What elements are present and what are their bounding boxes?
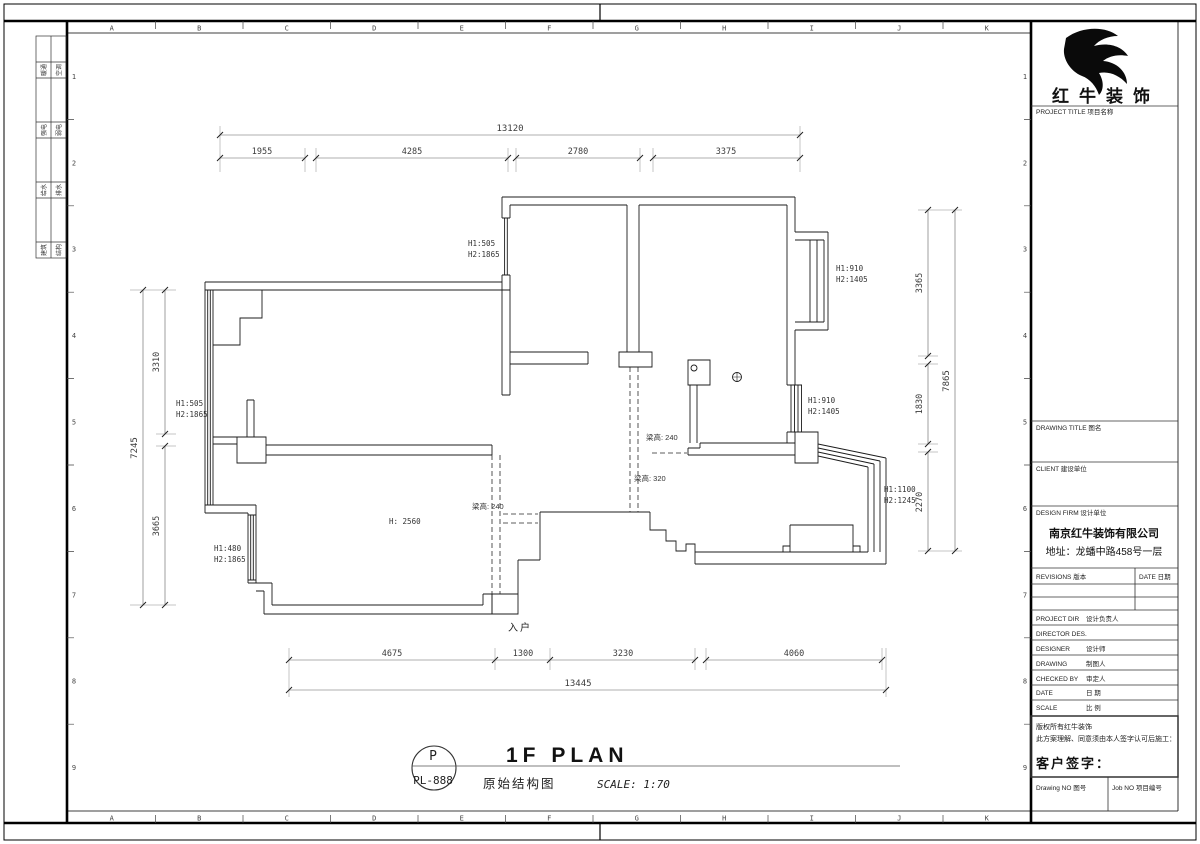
tb-drawing-no: Drawing NO 图号 (1036, 784, 1087, 792)
dim-seg: 1830 (915, 394, 925, 414)
drawing-title-en: 1F PLAN (506, 744, 629, 767)
floorplan-walls (205, 197, 886, 614)
grid-letter: E (460, 815, 464, 823)
grid-number: 9 (72, 764, 76, 772)
room-height-label: H: 2560 (389, 517, 421, 526)
grid-number: 8 (1023, 678, 1027, 686)
dim-seg: 4675 (382, 649, 402, 659)
signoff-column: 暖通 空调 强电 弱电 给水 排水 建筑 结构 (36, 36, 66, 258)
grid-letters-bottom: ABCDEFGHIJK (110, 815, 990, 823)
tb-row-cn: 审定人 (1086, 674, 1106, 683)
grid-letter: E (460, 25, 464, 33)
signoff-cell: 弱电 (55, 124, 63, 136)
grid-number: 1 (72, 73, 76, 81)
grid-number: 8 (72, 678, 76, 686)
opening-label: H1:505 (468, 239, 495, 248)
tb-row-cn: 日 期 (1086, 689, 1101, 697)
tb-row-en: SCALE (1036, 705, 1058, 712)
beam-label: 梁高: 240 (472, 501, 504, 511)
tb-row-cn: 设计师 (1086, 644, 1106, 653)
plan-labels: H1:505 H2:1865 H1:910 H2:1405 H1:505 H2:… (176, 239, 916, 634)
grid-letter: G (635, 25, 639, 33)
tb-date-col: DATE 日期 (1139, 573, 1171, 581)
dim-seg: 1300 (513, 649, 533, 659)
beam-label: 梁高: 240 (646, 432, 678, 442)
grid-reference-ticks (67, 21, 1031, 823)
tb-drawing-title: DRAWING TITLE 图名 (1036, 423, 1101, 432)
grid-letter: H (722, 25, 726, 33)
drawing-sheet: ABCDEFGHIJK ABCDEFGHIJK 123456789 123456… (0, 0, 1200, 844)
beam-label: 梁高: 320 (634, 473, 666, 483)
grid-number: 6 (72, 505, 76, 513)
dim-seg: 3375 (716, 147, 736, 157)
grid-letter: A (110, 25, 115, 33)
grid-number: 7 (72, 591, 76, 599)
grid-number: 2 (72, 159, 76, 167)
grid-letter: J (897, 25, 901, 33)
tb-row-cn: 设计负责人 (1086, 614, 1119, 623)
grid-number: 3 (1023, 246, 1027, 254)
dim-seg: 3365 (915, 273, 925, 293)
opening-label: H2:1865 (214, 555, 246, 564)
grid-numbers-left: 123456789 (72, 73, 76, 772)
tb-row-en: DESIGNER (1036, 646, 1070, 653)
entry-label: 入户 (508, 621, 532, 634)
tb-row-en: DRAWING (1036, 661, 1067, 668)
grid-number: 6 (1023, 505, 1027, 513)
signoff-cell: 强电 (40, 124, 48, 136)
grid-letter: B (197, 815, 201, 823)
grid-letter: D (372, 815, 376, 823)
opening-label: H1:910 (808, 396, 836, 405)
drawing-scale: SCALE: 1:70 (597, 778, 670, 791)
signoff-cell: 空调 (55, 64, 63, 76)
grid-letter: I (810, 25, 814, 33)
opening-label: H1:910 (836, 264, 864, 273)
grid-letter: K (985, 815, 990, 823)
dim-seg: 2270 (915, 492, 925, 512)
dim-seg: 2780 (568, 147, 588, 157)
grid-letter: B (197, 25, 201, 33)
stamp-number: PL-888 (413, 774, 453, 787)
tb-copyright-1: 版权所有红牛装饰 (1036, 722, 1092, 731)
grid-numbers-right: 123456789 (1023, 73, 1027, 772)
tb-copyright-2: 此方案理解、同意须由本人签字认可后施工： (1036, 734, 1176, 743)
grid-letter: K (985, 25, 990, 33)
tb-row-en: DIRECTOR DES. (1036, 631, 1087, 638)
tb-client-sign: 客户签字： (1036, 756, 1111, 771)
cad-canvas: ABCDEFGHIJK ABCDEFGHIJK 123456789 123456… (0, 0, 1200, 844)
tb-row-cn: 制图人 (1086, 659, 1106, 668)
dim-seg: 3310 (152, 352, 162, 372)
grid-number: 5 (72, 419, 76, 427)
tb-job-no: Job NO 项目编号 (1112, 783, 1162, 792)
signoff-cell: 排水 (55, 184, 63, 196)
grid-number: 3 (72, 246, 76, 254)
grid-letter: C (285, 815, 289, 823)
grid-letter: F (547, 815, 551, 823)
drawing-title-stamp: P PL-888 1F PLAN 原始结构图 SCALE: 1:70 (412, 744, 900, 791)
grid-letters-top: ABCDEFGHIJK (110, 25, 990, 33)
tb-firm-address: 地址：龙蟠中路458号一层 (1046, 545, 1163, 558)
grid-letter: F (547, 25, 551, 33)
opening-label: H2:1865 (468, 250, 500, 259)
sheet-frame (4, 4, 1196, 840)
dim-seg: 4285 (402, 147, 422, 157)
grid-letter: H (722, 815, 726, 823)
dim-overall-bottom: 13445 (564, 679, 591, 689)
tb-row-en: DATE (1036, 690, 1054, 697)
stamp-letter: P (429, 749, 437, 764)
grid-letter: G (635, 815, 639, 823)
grid-letter: J (897, 815, 901, 823)
tb-client: CLIENT 建设单位 (1036, 464, 1087, 473)
grid-letter: A (110, 815, 115, 823)
tb-row-cn: 比 例 (1086, 703, 1101, 712)
grid-number: 5 (1023, 419, 1027, 427)
brand-logo-bird-icon (1064, 29, 1128, 95)
grid-number: 4 (72, 332, 76, 340)
dim-overall-top: 13120 (496, 124, 523, 134)
tb-row-en: CHECKED BY (1036, 676, 1079, 683)
dim-overall-right: 7865 (942, 370, 952, 392)
grid-number: 1 (1023, 73, 1027, 81)
grid-number: 9 (1023, 764, 1027, 772)
signoff-cell: 暖通 (40, 64, 48, 76)
dim-seg: 3230 (613, 649, 633, 659)
grid-letter: I (810, 815, 814, 823)
signoff-cell: 结构 (55, 244, 63, 256)
grid-number: 2 (1023, 159, 1027, 167)
opening-label: H2:1865 (176, 410, 208, 419)
title-block: 红牛装饰 PROJECT TITLE 项目名称 DRAWING TITLE 图名… (1031, 29, 1178, 811)
brand-name: 红牛装饰 (1052, 86, 1160, 107)
grid-tick-path (67, 21, 1031, 823)
tb-design-firm: DESIGN FIRM 设计单位 (1036, 508, 1107, 517)
drawing-title-cn: 原始结构图 (483, 776, 556, 791)
grid-number: 4 (1023, 332, 1027, 340)
tb-revisions: REVISIONS 版本 (1036, 572, 1087, 581)
dim-overall-left: 7245 (130, 437, 140, 459)
signoff-cell: 建筑 (40, 244, 48, 256)
opening-label: H2:1405 (836, 275, 868, 284)
tb-project-title: PROJECT TITLE 项目名称 (1036, 107, 1114, 116)
opening-label: H2:1405 (808, 407, 840, 416)
opening-label: H1:1100 (884, 485, 916, 494)
grid-letter: C (285, 25, 289, 33)
grid-letter: D (372, 25, 376, 33)
tb-firm-name: 南京红牛装饰有限公司 (1049, 526, 1159, 540)
grid-number: 7 (1023, 591, 1027, 599)
dim-seg: 4060 (784, 649, 804, 659)
opening-label: H1:480 (214, 544, 242, 553)
tb-row-en: PROJECT DIR (1036, 616, 1080, 623)
opening-label: H1:505 (176, 399, 203, 408)
dim-seg: 3665 (152, 516, 162, 536)
dim-seg: 1955 (252, 147, 272, 157)
signoff-cell: 给水 (40, 184, 48, 196)
opening-label: H2:1245 (884, 496, 916, 505)
